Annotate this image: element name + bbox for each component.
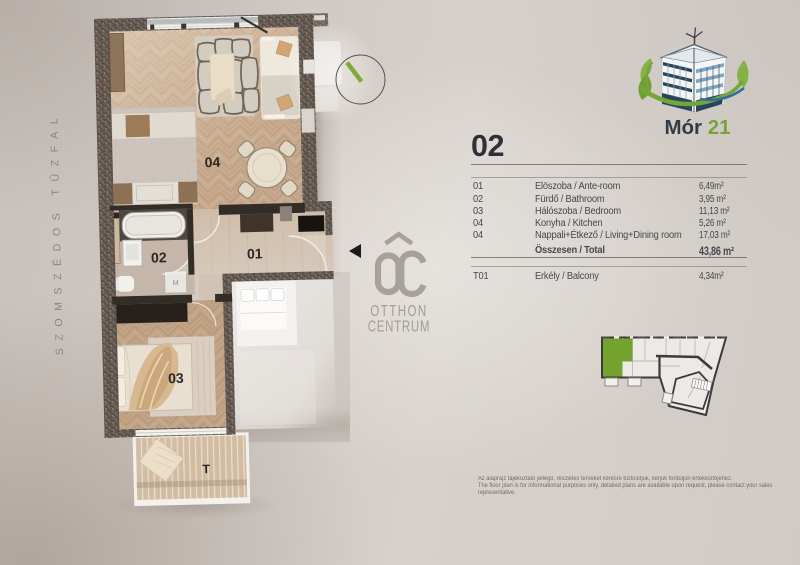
svg-text:CENTRUM: CENTRUM [368, 318, 430, 335]
svg-text:02: 02 [151, 249, 167, 265]
svg-text:T: T [202, 462, 210, 476]
svg-text:M: M [173, 280, 179, 287]
svg-text:OTTHON: OTTHON [370, 302, 427, 319]
svg-text:04: 04 [204, 154, 220, 170]
svg-text:03: 03 [168, 370, 184, 386]
svg-text:01: 01 [247, 245, 263, 261]
